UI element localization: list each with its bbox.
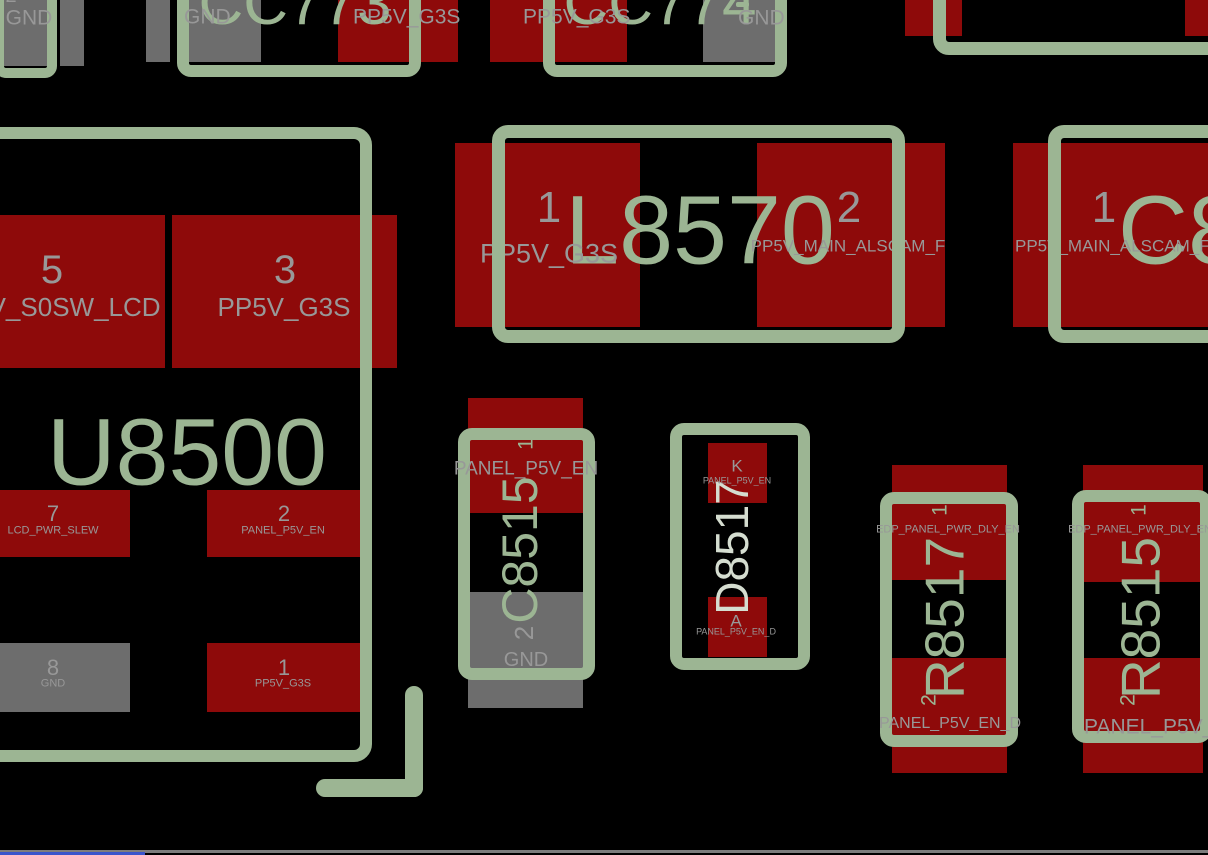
u8500-pin5-net: PP5V_S0SW_LCD [0,294,161,320]
d8517-anode-net: PANEL_P5V_EN_D [696,628,776,637]
cc773-net-pp5v: PP5V_G3S [353,7,460,28]
r8517-pin1-net: EDP_PANEL_PWR_DLY_EN [876,525,1020,536]
r8517-pin1-number: 1 [930,504,951,516]
c8515-pin2-net: GND [504,650,548,670]
r8517-pin2-number: 2 [919,694,940,706]
c8515-pin1-net: PANEL_P5V_EN [454,460,598,479]
u8500-pin5-number: 5 [41,250,63,290]
d8517-refdes: D8517 [709,479,755,615]
u8500-pin1-number: 1 [278,657,290,679]
c8515-refdes: C8515 [495,476,545,623]
bottom-divider [0,850,1208,853]
u8500-pin7-number: 7 [47,503,59,525]
l8570-outline[interactable] [492,125,905,343]
u8500-pin3-number: 3 [274,250,296,290]
r8515-pin1-net: EDP_PANEL_PWR_DLY_EN [1068,525,1208,536]
silkscreen-bracket-horizontal [316,779,423,797]
d8517-cathode-net: PANEL_P5V_EN [703,477,771,486]
r8515-refdes: R8515 [1114,537,1169,699]
c8515-pin1-number: 1 [516,438,537,450]
u8500-refdes: U8500 [47,406,327,501]
u8500-pin8-net: GND [41,679,65,690]
r8515-pin2-number: 2 [1118,694,1139,706]
u8500-pin3-net: PP5V_G3S [218,294,351,320]
cc774-net-gnd: GND [738,8,785,29]
stray-pad-gray-2[interactable] [146,0,170,62]
u8500-pin8-number: 8 [47,657,59,679]
u8500-pin2-number: 2 [278,503,290,525]
r8517-pin2-net: PANEL_P5V_EN_D [879,716,1021,732]
u8500-pin2-net: PANEL_P5V_EN [241,526,325,537]
c8-partial-outline[interactable] [1048,125,1208,343]
c8515-pin2-number: 2 [511,626,537,640]
d8517-cathode-pin: K [731,458,742,475]
cc774-net-pp5v: PP5V_G3S [523,7,630,28]
r8515-pin1-number: 1 [1129,504,1150,516]
edge-component-pin-number: 2 [5,0,16,6]
r8515-pin2-net: PANEL_P5V_EN [1084,717,1208,738]
pcb-canvas[interactable]: 2 GND CC773 GND PP5V_G3S CC774 PP5V_G3S … [0,0,1208,855]
top-right-outline[interactable] [933,0,1208,55]
u8500-pin1-net: PP5V_G3S [255,679,311,690]
cc773-net-gnd: GND [184,7,231,28]
edge-component-net-label: GND [6,8,53,29]
stray-pad-gray-1[interactable] [60,0,84,66]
u8500-pin7-net: LCD_PWR_SLEW [7,526,98,537]
r8517-refdes: R8517 [918,537,973,699]
